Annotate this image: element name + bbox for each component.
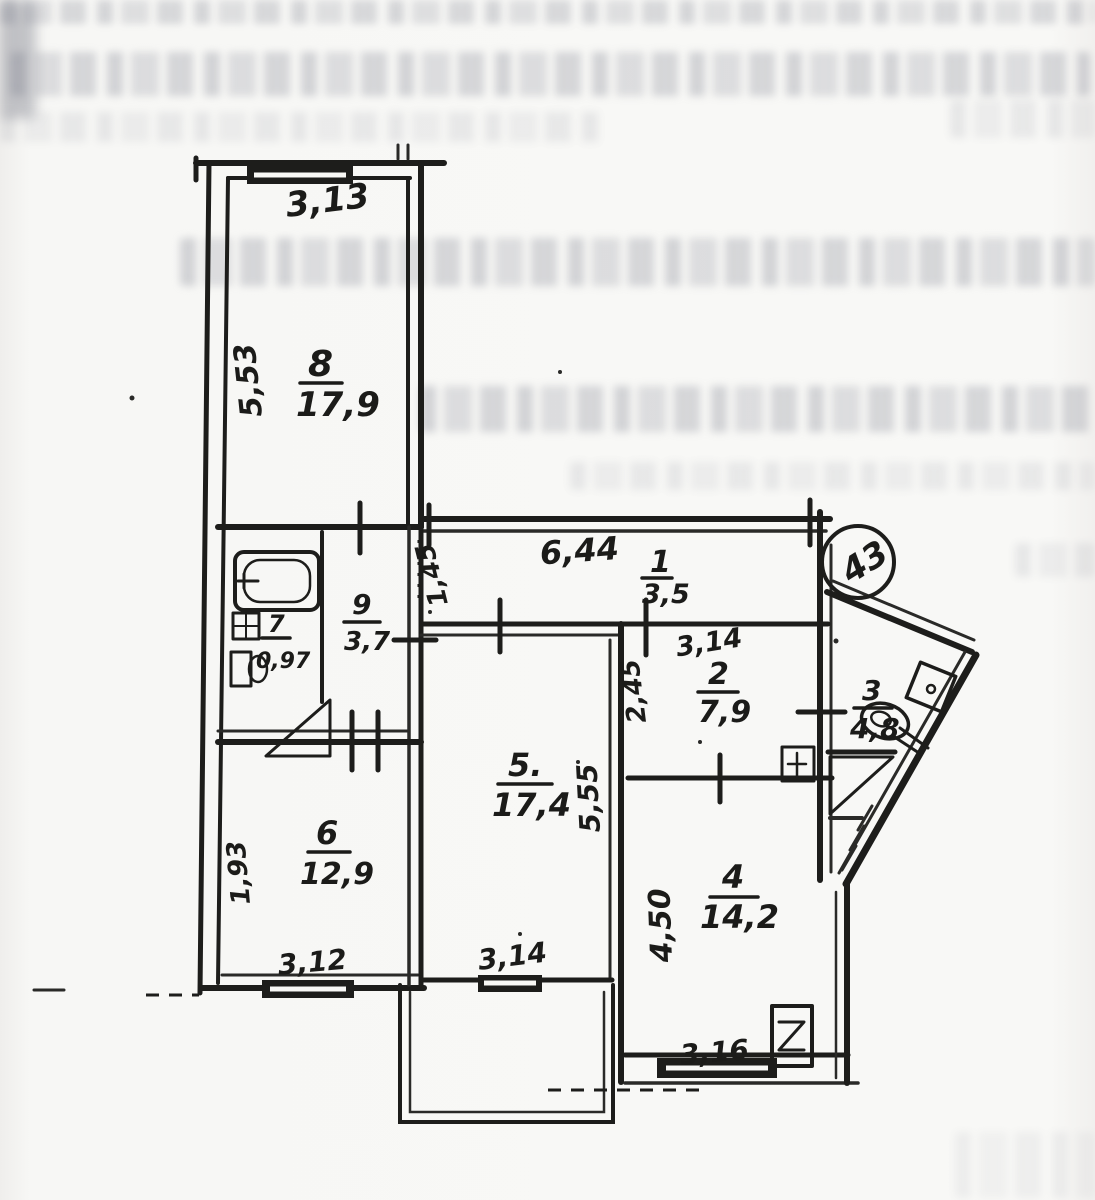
dim-left-room8: 5,53 [227,342,270,419]
room2-sink-cross [788,753,806,778]
wall-left-outer [200,163,209,993]
sink-grid [233,613,259,639]
room-1-number: 1 [650,545,671,580]
dim-window-room5: 3,14 [476,936,549,977]
loggia-center-inner [410,992,604,1112]
vent-shaft-z-icon [779,1022,804,1050]
dim-door-hall: 1,45 [410,540,455,610]
dim-room5-height: 5,55 [570,763,607,834]
wall-kitchen-diagonal [827,592,972,652]
room-8-number: 8 [308,344,333,385]
bathtub-tap-icon [238,574,258,588]
loggia-center [400,975,613,1122]
dim-room6-left: 1,93 [221,839,256,906]
room-2-area: 7,9 [698,695,751,730]
exterior-walls [34,145,976,998]
room-7-area: 0,97 [256,649,311,674]
loggia-center-walls [400,985,613,1122]
room-6-number: 6 [316,814,338,852]
dim-window-room4: 3,16 [678,1033,750,1072]
room-6-area: 12,9 [300,857,374,892]
room-9-number: 9 [352,588,371,621]
room-1-area: 3,5 [642,579,690,610]
dim-hall-width: 6,44 [539,529,620,572]
room-7-number: 7 [268,610,285,638]
roof-tick [398,145,408,159]
floor-plan-drawing: 43 8 17,9 9 3,7 7 0,97 1 3,5 5. 17,4 2 7… [0,0,1095,1200]
dim-room2-width: 3,14 [674,622,745,663]
room-2-number: 2 [708,657,729,692]
door-leaf-bathroom [266,700,330,756]
room-8-area: 17,9 [296,385,380,425]
kitchen-sink-drain [927,685,935,693]
door-leaf-kitchen-balcony [830,757,893,814]
wall-right-long-diagonal-inner [839,652,965,873]
room-4-number: 4 [721,858,744,896]
dim-window-room6: 3,12 [276,943,348,982]
room-5-number: 5. [508,746,542,784]
room-4-area: 14,2 [700,898,779,936]
room-labels: 8 17,9 9 3,7 7 0,97 1 3,5 5. 17,4 2 7,9 … [256,344,900,936]
room-3-area: 4,8 [849,712,900,745]
scanned-floor-plan-page: 43 8 17,9 9 3,7 7 0,97 1 3,5 5. 17,4 2 7… [0,0,1095,1200]
room-3-number: 3 [862,674,881,707]
dim-room4-height: 4,50 [642,888,680,964]
room-5-area: 17,4 [492,786,571,824]
room-9-area: 3,7 [344,627,391,657]
apartment-number-circle: 43 [822,526,896,598]
dim-corridor: 2,45 [615,657,653,724]
